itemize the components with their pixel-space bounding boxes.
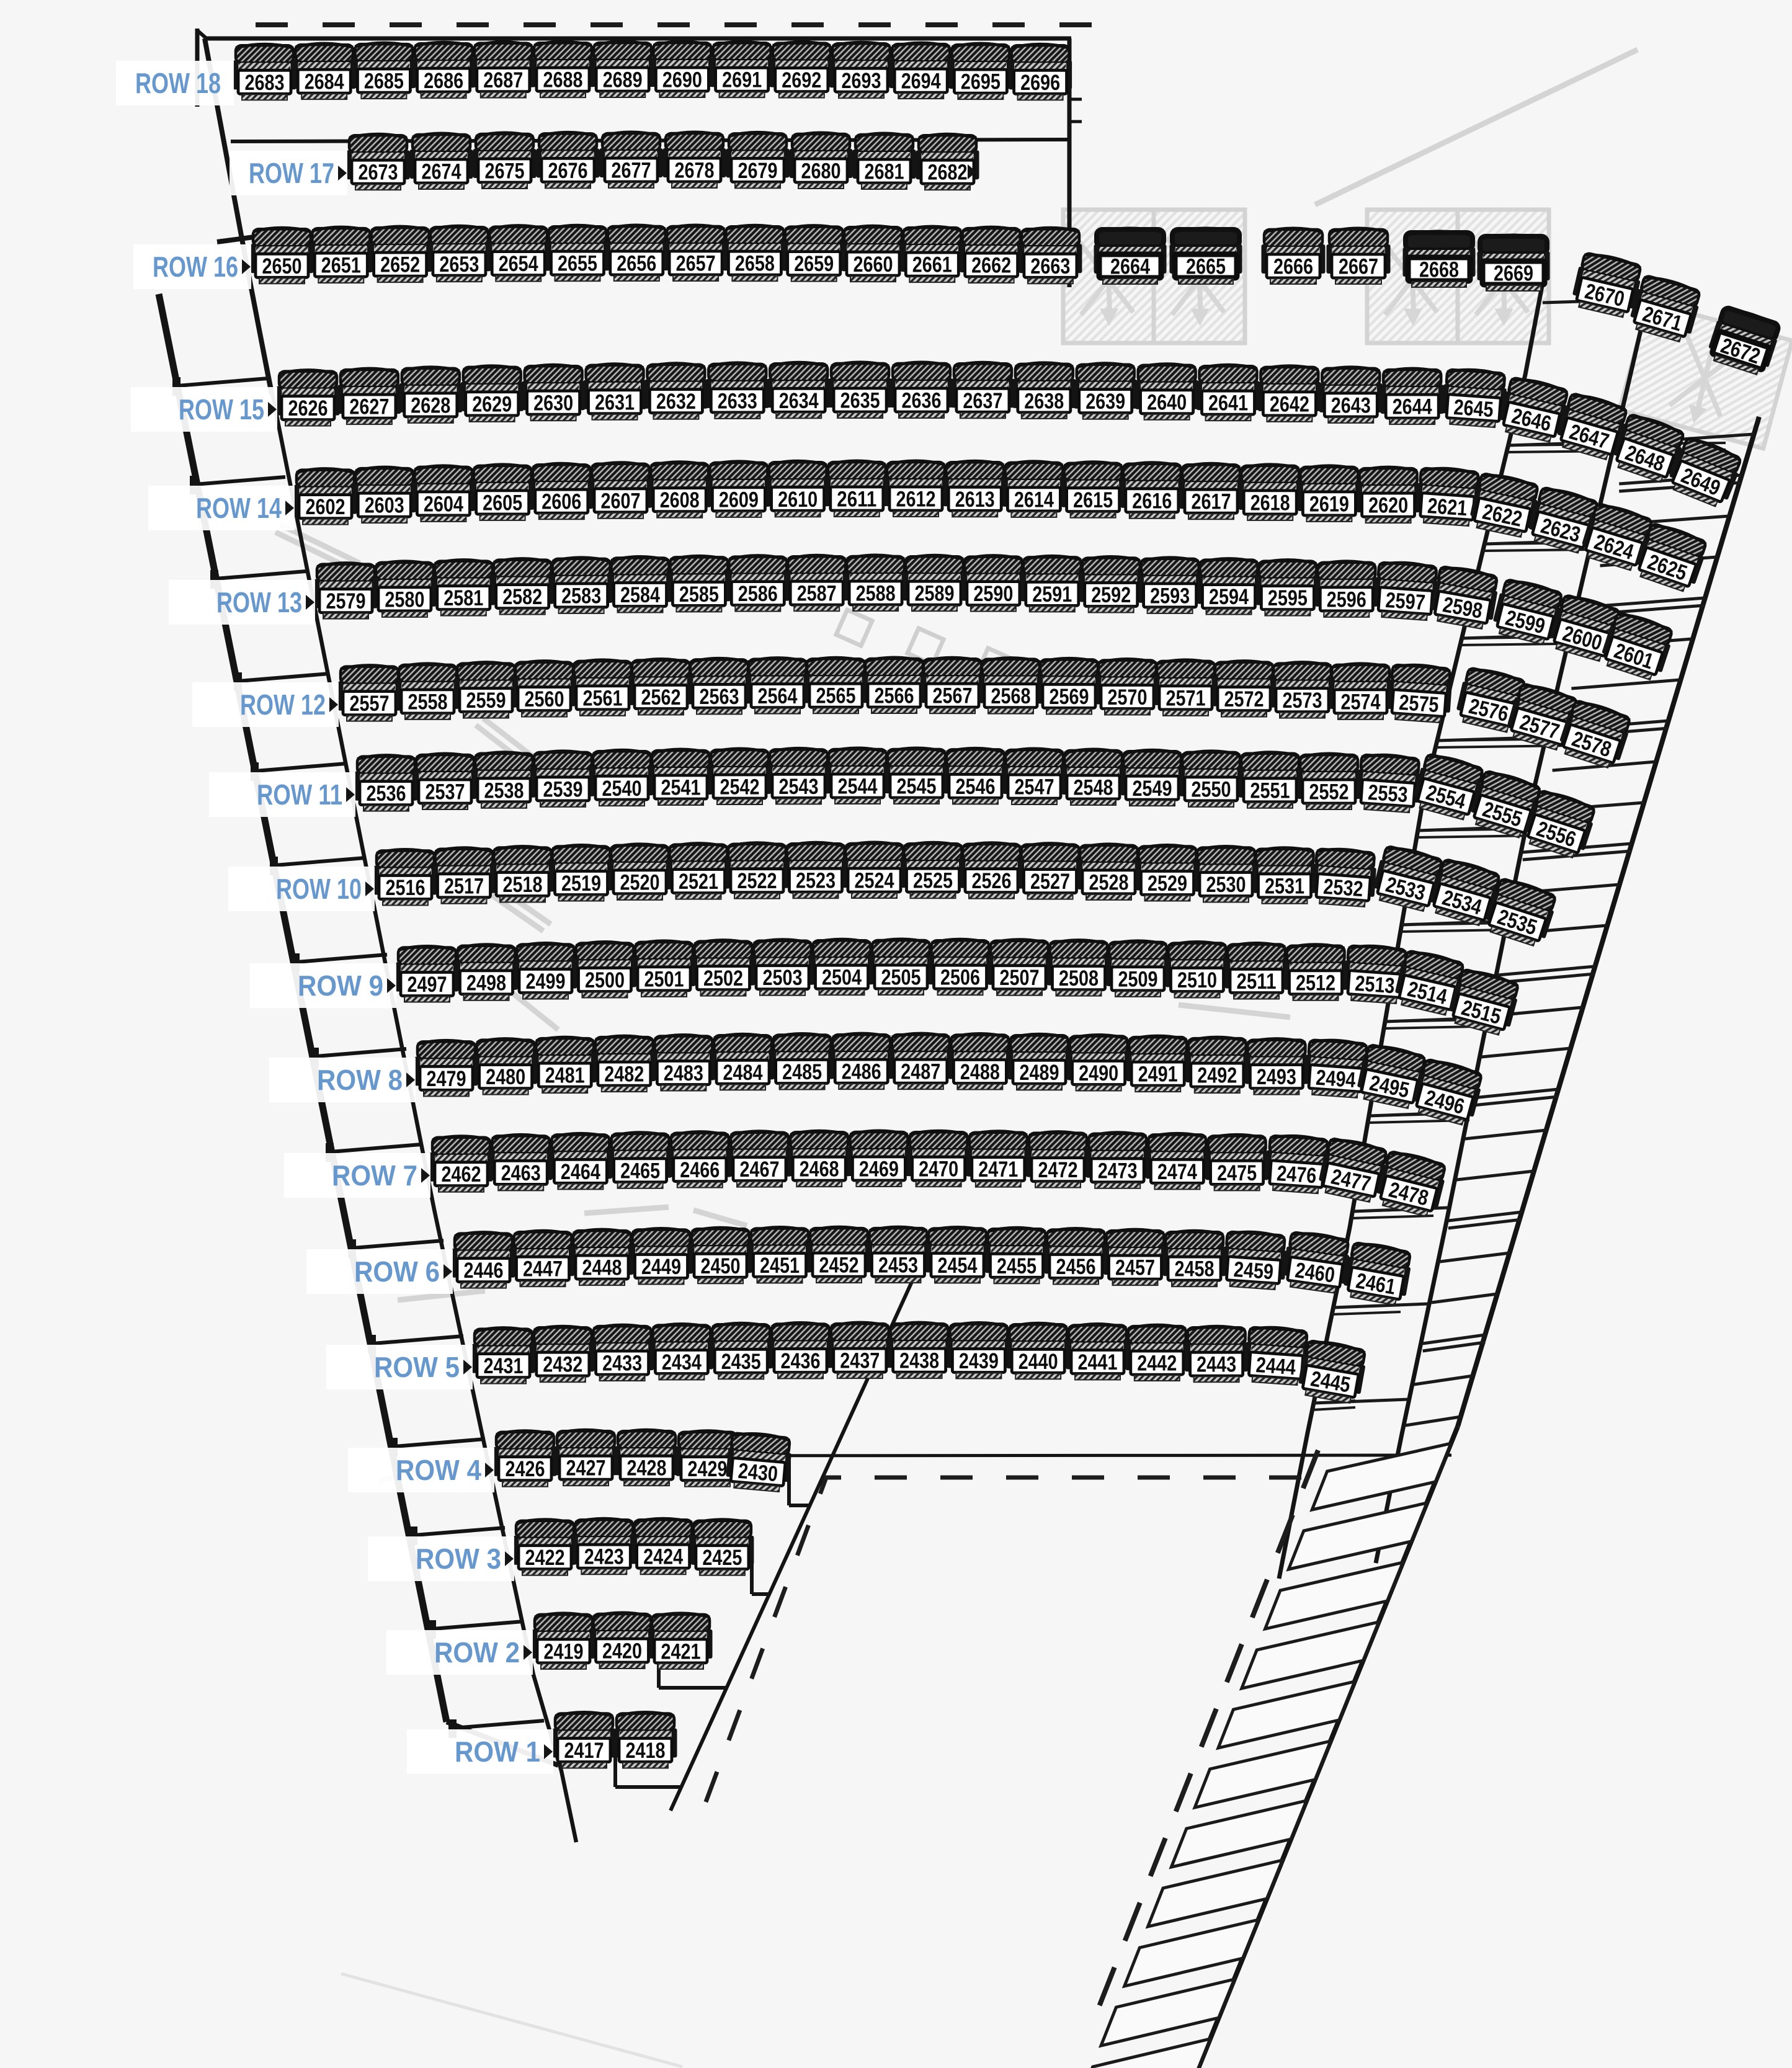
- svg-text:2608: 2608: [660, 488, 700, 512]
- svg-text:2437: 2437: [840, 1349, 880, 1373]
- svg-text:2432: 2432: [543, 1353, 582, 1377]
- svg-text:2591: 2591: [1032, 582, 1072, 607]
- svg-text:2630: 2630: [533, 391, 573, 416]
- svg-text:2501: 2501: [644, 967, 684, 991]
- svg-text:2531: 2531: [1265, 874, 1304, 898]
- svg-text:2664: 2664: [1110, 255, 1150, 279]
- svg-text:2484: 2484: [723, 1061, 763, 1085]
- svg-text:2594: 2594: [1209, 585, 1249, 609]
- svg-text:2612: 2612: [896, 488, 936, 512]
- svg-text:2511: 2511: [1237, 969, 1277, 994]
- svg-text:2579: 2579: [326, 589, 366, 613]
- svg-text:2694: 2694: [901, 69, 941, 94]
- svg-text:2438: 2438: [899, 1349, 939, 1373]
- svg-text:2506: 2506: [940, 966, 980, 990]
- svg-text:2627: 2627: [349, 395, 389, 419]
- svg-text:2539: 2539: [543, 777, 583, 801]
- svg-text:2593: 2593: [1150, 584, 1190, 608]
- svg-text:2494: 2494: [1315, 1066, 1357, 1092]
- svg-text:2475: 2475: [1217, 1161, 1257, 1185]
- svg-text:2528: 2528: [1089, 870, 1129, 894]
- svg-text:ROW 5: ROW 5: [374, 1351, 460, 1383]
- svg-text:ROW 3: ROW 3: [416, 1543, 501, 1575]
- svg-text:2667: 2667: [1339, 255, 1378, 279]
- svg-text:2454: 2454: [938, 1254, 978, 1278]
- svg-text:2425: 2425: [702, 1546, 742, 1570]
- svg-text:2682: 2682: [928, 161, 968, 185]
- svg-text:2596: 2596: [1327, 587, 1366, 612]
- svg-text:2476: 2476: [1276, 1161, 1317, 1188]
- svg-text:2657: 2657: [676, 252, 716, 276]
- svg-text:2469: 2469: [859, 1157, 899, 1182]
- svg-text:2635: 2635: [840, 389, 880, 413]
- svg-text:2491: 2491: [1138, 1063, 1178, 1087]
- svg-text:2676: 2676: [548, 159, 588, 183]
- svg-text:2446: 2446: [464, 1259, 504, 1283]
- svg-text:ROW 6: ROW 6: [354, 1255, 440, 1288]
- svg-text:2546: 2546: [956, 775, 996, 799]
- svg-text:2426: 2426: [506, 1457, 545, 1481]
- svg-text:2687: 2687: [483, 68, 523, 92]
- svg-text:2669: 2669: [1494, 262, 1533, 286]
- svg-text:2663: 2663: [1030, 254, 1070, 279]
- svg-text:2633: 2633: [718, 389, 757, 413]
- svg-text:2483: 2483: [664, 1061, 703, 1085]
- svg-text:2642: 2642: [1270, 392, 1309, 416]
- svg-text:2538: 2538: [484, 778, 524, 803]
- svg-text:2574: 2574: [1341, 690, 1381, 714]
- svg-text:2659: 2659: [794, 252, 834, 276]
- svg-text:2428: 2428: [627, 1456, 667, 1481]
- svg-text:2684: 2684: [305, 70, 344, 94]
- svg-text:2544: 2544: [838, 775, 878, 799]
- svg-text:2512: 2512: [1296, 971, 1335, 995]
- svg-text:2520: 2520: [620, 870, 660, 894]
- svg-text:2444: 2444: [1255, 1353, 1297, 1379]
- svg-text:2447: 2447: [523, 1257, 563, 1281]
- svg-text:2459: 2459: [1233, 1257, 1275, 1284]
- svg-text:2537: 2537: [426, 780, 465, 804]
- svg-text:2562: 2562: [641, 685, 681, 710]
- svg-text:2681: 2681: [865, 160, 904, 184]
- svg-text:2468: 2468: [800, 1157, 839, 1182]
- svg-text:2615: 2615: [1073, 488, 1113, 512]
- svg-text:2580: 2580: [385, 587, 424, 612]
- svg-text:2582: 2582: [502, 585, 542, 609]
- svg-text:2434: 2434: [662, 1350, 702, 1375]
- svg-text:2581: 2581: [444, 586, 483, 610]
- svg-text:2549: 2549: [1133, 777, 1172, 801]
- svg-text:2570: 2570: [1108, 685, 1148, 710]
- svg-text:2488: 2488: [960, 1060, 1000, 1084]
- svg-text:2655: 2655: [558, 252, 597, 276]
- svg-text:ROW 14: ROW 14: [196, 492, 282, 524]
- svg-text:2423: 2423: [584, 1545, 624, 1569]
- svg-text:2567: 2567: [933, 684, 973, 708]
- svg-text:2680: 2680: [801, 159, 841, 184]
- svg-text:2509: 2509: [1118, 967, 1158, 991]
- svg-text:2588: 2588: [856, 582, 896, 606]
- svg-text:2490: 2490: [1079, 1061, 1118, 1085]
- svg-text:2517: 2517: [444, 874, 484, 898]
- svg-text:2429: 2429: [688, 1457, 728, 1481]
- svg-text:2590: 2590: [973, 582, 1013, 606]
- svg-text:2449: 2449: [641, 1255, 681, 1279]
- svg-text:2666: 2666: [1273, 255, 1313, 279]
- svg-text:2451: 2451: [760, 1254, 800, 1278]
- svg-text:2656: 2656: [617, 252, 656, 276]
- svg-text:2433: 2433: [602, 1352, 642, 1376]
- svg-text:2693: 2693: [842, 69, 881, 93]
- svg-text:2507: 2507: [1000, 966, 1040, 990]
- svg-text:2465: 2465: [620, 1159, 660, 1183]
- svg-text:2485: 2485: [782, 1060, 822, 1084]
- svg-text:2566: 2566: [875, 684, 914, 708]
- svg-text:2572: 2572: [1224, 687, 1264, 711]
- svg-text:ROW 4: ROW 4: [396, 1454, 481, 1486]
- svg-text:2543: 2543: [779, 775, 819, 799]
- svg-text:2639: 2639: [1085, 390, 1125, 414]
- svg-text:2589: 2589: [915, 582, 955, 606]
- svg-text:2471: 2471: [978, 1157, 1018, 1182]
- svg-text:2689: 2689: [603, 68, 643, 92]
- svg-text:2653: 2653: [439, 252, 479, 277]
- svg-text:2542: 2542: [720, 775, 760, 800]
- svg-text:2661: 2661: [912, 253, 952, 277]
- svg-text:2527: 2527: [1030, 870, 1070, 894]
- svg-text:2530: 2530: [1206, 873, 1246, 897]
- svg-text:2519: 2519: [561, 871, 601, 896]
- svg-text:2592: 2592: [1091, 583, 1131, 607]
- svg-text:2603: 2603: [365, 494, 404, 518]
- svg-text:2431: 2431: [484, 1354, 524, 1378]
- svg-text:2420: 2420: [602, 1639, 642, 1664]
- svg-text:2617: 2617: [1192, 490, 1231, 514]
- svg-text:2634: 2634: [779, 389, 819, 413]
- svg-text:2609: 2609: [719, 488, 759, 512]
- svg-text:2640: 2640: [1147, 390, 1187, 414]
- svg-text:2458: 2458: [1175, 1257, 1215, 1281]
- svg-text:2417: 2417: [564, 1739, 604, 1763]
- svg-text:ROW 7: ROW 7: [332, 1159, 417, 1192]
- svg-text:2628: 2628: [411, 393, 450, 417]
- svg-text:2522: 2522: [738, 869, 777, 893]
- svg-text:2602: 2602: [306, 495, 345, 519]
- svg-text:2510: 2510: [1177, 968, 1217, 992]
- svg-text:2523: 2523: [796, 869, 836, 893]
- svg-text:2467: 2467: [740, 1157, 780, 1182]
- svg-text:2611: 2611: [837, 488, 876, 512]
- svg-text:2613: 2613: [955, 488, 995, 512]
- svg-text:2450: 2450: [701, 1254, 741, 1278]
- svg-text:2505: 2505: [881, 966, 921, 990]
- svg-text:ROW 13: ROW 13: [216, 586, 302, 618]
- svg-text:ROW 8: ROW 8: [317, 1064, 403, 1096]
- svg-text:2498: 2498: [466, 971, 506, 995]
- svg-text:2637: 2637: [963, 389, 1002, 413]
- svg-text:2575: 2575: [1398, 690, 1440, 717]
- svg-text:2631: 2631: [595, 390, 635, 414]
- svg-text:2456: 2456: [1056, 1255, 1096, 1279]
- svg-text:2560: 2560: [525, 687, 564, 711]
- svg-text:2654: 2654: [499, 252, 538, 276]
- svg-text:2626: 2626: [288, 396, 328, 421]
- svg-text:2645: 2645: [1453, 395, 1494, 422]
- svg-text:ROW 11: ROW 11: [257, 778, 342, 811]
- svg-text:2563: 2563: [700, 685, 739, 709]
- svg-text:2497: 2497: [408, 973, 447, 997]
- svg-text:2678: 2678: [675, 159, 715, 183]
- svg-text:2424: 2424: [643, 1545, 683, 1569]
- svg-text:2503: 2503: [763, 966, 803, 990]
- svg-text:2421: 2421: [661, 1639, 701, 1664]
- svg-text:2443: 2443: [1197, 1353, 1236, 1377]
- svg-text:2493: 2493: [1257, 1065, 1296, 1089]
- svg-text:2551: 2551: [1250, 778, 1290, 803]
- svg-text:2442: 2442: [1137, 1352, 1177, 1376]
- svg-text:2665: 2665: [1186, 255, 1226, 279]
- svg-text:ROW 18: ROW 18: [135, 67, 221, 99]
- svg-text:2419: 2419: [544, 1639, 584, 1664]
- svg-text:2673: 2673: [359, 161, 398, 185]
- svg-text:2462: 2462: [442, 1162, 481, 1187]
- svg-text:2565: 2565: [816, 684, 856, 708]
- svg-text:2492: 2492: [1197, 1064, 1237, 1088]
- svg-text:2568: 2568: [991, 684, 1031, 708]
- svg-text:2652: 2652: [380, 253, 420, 277]
- svg-text:2418: 2418: [626, 1739, 666, 1763]
- svg-text:2564: 2564: [758, 684, 798, 708]
- svg-text:2595: 2595: [1268, 586, 1308, 610]
- svg-text:2679: 2679: [738, 159, 778, 183]
- svg-text:2439: 2439: [959, 1349, 999, 1373]
- svg-text:2536: 2536: [367, 782, 406, 806]
- svg-text:2502: 2502: [703, 966, 743, 991]
- svg-text:2427: 2427: [566, 1456, 606, 1481]
- svg-text:2508: 2508: [1059, 966, 1099, 991]
- svg-text:2585: 2585: [679, 582, 719, 607]
- svg-text:2621: 2621: [1427, 494, 1468, 520]
- svg-text:2586: 2586: [738, 582, 778, 606]
- svg-text:2636: 2636: [902, 389, 942, 413]
- svg-text:2662: 2662: [971, 254, 1011, 278]
- svg-text:2660: 2660: [854, 252, 893, 277]
- svg-text:2470: 2470: [919, 1157, 958, 1182]
- svg-text:2457: 2457: [1115, 1256, 1155, 1280]
- svg-text:2540: 2540: [602, 777, 642, 801]
- svg-text:2616: 2616: [1132, 489, 1172, 513]
- svg-text:ROW 9: ROW 9: [298, 969, 383, 1002]
- svg-text:2499: 2499: [526, 969, 566, 994]
- svg-text:2569: 2569: [1050, 685, 1089, 709]
- svg-text:2466: 2466: [680, 1158, 720, 1182]
- svg-text:2463: 2463: [501, 1161, 541, 1185]
- svg-text:2548: 2548: [1074, 776, 1113, 800]
- svg-text:2500: 2500: [585, 968, 625, 992]
- svg-text:2677: 2677: [612, 159, 651, 183]
- svg-text:2441: 2441: [1078, 1350, 1118, 1375]
- svg-text:ROW 12: ROW 12: [240, 689, 326, 721]
- svg-text:2643: 2643: [1331, 393, 1371, 417]
- svg-text:2583: 2583: [561, 584, 601, 608]
- svg-text:2668: 2668: [1419, 258, 1459, 282]
- svg-text:2552: 2552: [1309, 780, 1349, 804]
- svg-text:2545: 2545: [897, 775, 937, 799]
- svg-text:2571: 2571: [1166, 686, 1206, 710]
- svg-text:2489: 2489: [1020, 1061, 1059, 1085]
- svg-text:2474: 2474: [1157, 1160, 1197, 1184]
- svg-text:2587: 2587: [797, 582, 837, 606]
- svg-text:2550: 2550: [1192, 777, 1231, 801]
- svg-text:2440: 2440: [1019, 1350, 1058, 1374]
- svg-text:2453: 2453: [878, 1254, 918, 1278]
- svg-text:2559: 2559: [466, 689, 506, 713]
- svg-text:2448: 2448: [582, 1256, 622, 1280]
- svg-text:2619: 2619: [1309, 492, 1349, 516]
- svg-text:2686: 2686: [424, 69, 463, 93]
- svg-text:2480: 2480: [486, 1065, 525, 1089]
- svg-text:2529: 2529: [1148, 871, 1187, 896]
- svg-text:2487: 2487: [901, 1060, 940, 1084]
- svg-text:2435: 2435: [721, 1350, 761, 1374]
- svg-text:2614: 2614: [1014, 488, 1054, 512]
- svg-text:ROW 16: ROW 16: [153, 251, 238, 283]
- svg-text:2525: 2525: [913, 869, 953, 893]
- svg-text:2651: 2651: [321, 254, 361, 278]
- svg-text:2436: 2436: [781, 1349, 821, 1373]
- svg-text:2524: 2524: [855, 869, 894, 893]
- svg-text:2692: 2692: [782, 68, 821, 92]
- svg-text:2455: 2455: [997, 1254, 1036, 1278]
- svg-text:2610: 2610: [778, 488, 818, 512]
- svg-text:2561: 2561: [583, 686, 623, 710]
- svg-text:2606: 2606: [542, 490, 581, 514]
- svg-text:ROW 10: ROW 10: [276, 873, 362, 905]
- svg-text:2479: 2479: [427, 1067, 466, 1091]
- svg-text:2674: 2674: [422, 160, 461, 184]
- svg-text:2632: 2632: [656, 390, 696, 414]
- svg-text:2597: 2597: [1384, 588, 1426, 615]
- svg-text:2526: 2526: [972, 869, 1012, 893]
- svg-text:2695: 2695: [961, 70, 1001, 94]
- svg-text:2521: 2521: [679, 870, 718, 894]
- svg-text:2675: 2675: [485, 159, 525, 184]
- svg-text:2607: 2607: [601, 489, 641, 513]
- svg-text:2685: 2685: [364, 69, 404, 94]
- svg-text:2605: 2605: [483, 491, 522, 515]
- svg-text:2641: 2641: [1208, 391, 1248, 416]
- svg-text:2638: 2638: [1024, 389, 1064, 413]
- svg-text:2473: 2473: [1098, 1159, 1138, 1183]
- svg-text:2558: 2558: [408, 690, 448, 714]
- svg-text:2541: 2541: [661, 776, 701, 800]
- svg-text:2481: 2481: [545, 1064, 585, 1088]
- svg-text:2430: 2430: [737, 1459, 778, 1486]
- svg-text:2650: 2650: [262, 254, 302, 279]
- svg-text:2573: 2573: [1283, 689, 1322, 713]
- svg-text:2690: 2690: [662, 68, 702, 92]
- svg-text:2513: 2513: [1354, 971, 1396, 998]
- svg-text:ROW 1: ROW 1: [455, 1736, 540, 1768]
- svg-text:2504: 2504: [822, 966, 862, 990]
- svg-text:2482: 2482: [604, 1063, 644, 1087]
- svg-text:2584: 2584: [620, 583, 660, 607]
- svg-text:2683: 2683: [245, 71, 285, 95]
- svg-text:2532: 2532: [1322, 875, 1364, 901]
- svg-text:2691: 2691: [722, 68, 762, 92]
- svg-text:2688: 2688: [543, 68, 583, 92]
- svg-text:2464: 2464: [561, 1160, 600, 1184]
- svg-text:2658: 2658: [735, 252, 775, 276]
- svg-text:2516: 2516: [386, 876, 426, 900]
- svg-text:2472: 2472: [1038, 1158, 1078, 1182]
- svg-text:2618: 2618: [1250, 491, 1290, 515]
- svg-text:ROW 15: ROW 15: [179, 393, 264, 426]
- svg-text:2604: 2604: [424, 492, 463, 516]
- svg-text:ROW 17: ROW 17: [249, 157, 334, 189]
- svg-text:2696: 2696: [1020, 71, 1060, 95]
- svg-text:2452: 2452: [819, 1254, 859, 1278]
- svg-text:2553: 2553: [1367, 780, 1409, 807]
- svg-text:2547: 2547: [1015, 775, 1054, 800]
- svg-text:2422: 2422: [525, 1546, 565, 1570]
- svg-text:2620: 2620: [1368, 494, 1408, 518]
- svg-text:ROW 2: ROW 2: [434, 1636, 520, 1669]
- svg-text:2557: 2557: [350, 692, 390, 716]
- svg-text:2629: 2629: [472, 392, 512, 416]
- svg-text:2486: 2486: [842, 1060, 881, 1084]
- svg-text:2518: 2518: [503, 873, 543, 897]
- svg-text:2644: 2644: [1393, 395, 1432, 419]
